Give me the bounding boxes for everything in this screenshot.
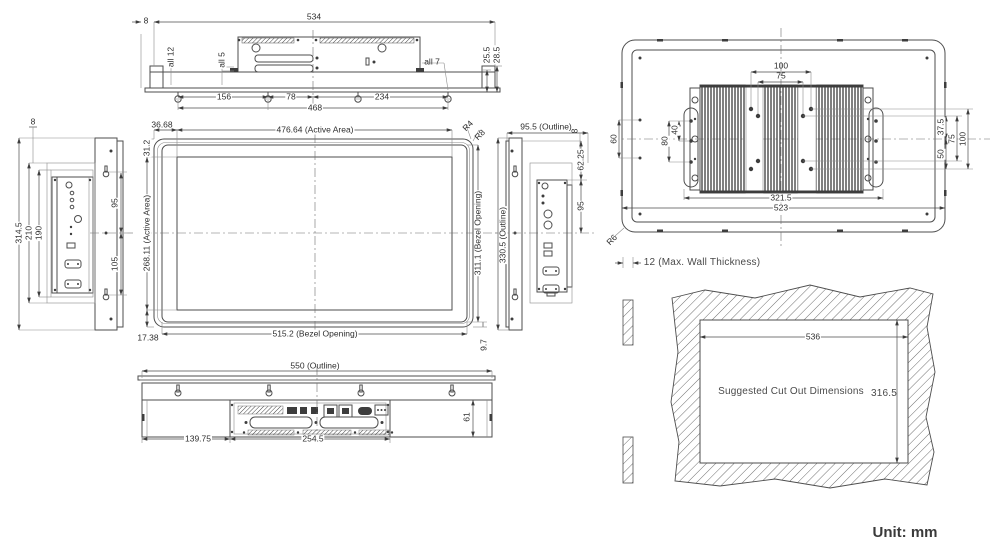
- dim-label-all7: all 7: [423, 58, 441, 67]
- wall-thickness-label: 12 (Max. Wall Thickness): [643, 258, 762, 269]
- dim-label-78: 78: [285, 93, 296, 102]
- dim-label-105: 105: [111, 256, 120, 272]
- dim-label-95-left: 95: [111, 197, 120, 208]
- dim-label-62-25: 62.25: [577, 148, 586, 171]
- dim-label-536: 536: [805, 333, 821, 342]
- dim-label-bezel-height: 311.1 (Bezel Opening): [474, 190, 483, 276]
- dim-label-550-outline: 550 (Outline): [289, 362, 340, 371]
- dim-label-active-width: 476.64 (Active Area): [275, 126, 354, 135]
- dim-label-17-38: 17.38: [136, 334, 159, 343]
- dim-label-75-vesa: 75: [948, 133, 957, 144]
- dim-label-330-5-outline: 330.5 (Outline): [499, 206, 508, 264]
- dim-label-534: 534: [306, 13, 322, 22]
- right-side-view-drawing: [495, 115, 610, 355]
- dim-label-139-75: 139.75: [184, 435, 212, 444]
- dim-label-100-top: 100: [773, 62, 789, 71]
- dim-label-316-5: 316.5: [870, 389, 898, 400]
- dim-label-234: 234: [374, 93, 390, 102]
- dim-label-8-right: 8: [571, 128, 580, 135]
- dim-label-80: 80: [661, 135, 670, 146]
- dim-label-75-top: 75: [775, 72, 786, 81]
- dim-label-bezel-width: 515.2 (Bezel Opening): [271, 330, 358, 339]
- cutout-caption: Suggested Cut Out Dimensions: [717, 387, 865, 398]
- dim-label-523: 523: [773, 204, 789, 213]
- dim-label-50: 50: [937, 148, 946, 159]
- dim-label-210: 210: [25, 225, 34, 241]
- dim-label-25-5: 25.5: [483, 46, 492, 65]
- dim-label-468: 468: [307, 104, 323, 113]
- dim-label-95-5-outline: 95.5 (Outline): [519, 123, 573, 132]
- technical-drawing-sheet: 534 8 all 12 all 5 all 7 25.5 28.5 156 7…: [0, 0, 1000, 560]
- dim-label-156: 156: [216, 93, 232, 102]
- front-view-drawing: [135, 112, 510, 362]
- dim-label-37-5: 37.5: [937, 118, 946, 137]
- dim-label-100-vesa: 100: [959, 131, 968, 147]
- dim-label-61: 61: [463, 411, 472, 422]
- dim-label-8-top: 8: [143, 17, 150, 26]
- dim-label-95-right: 95: [577, 200, 586, 211]
- dim-label-9-7: 9.7: [480, 338, 489, 352]
- dim-label-28-5: 28.5: [493, 46, 502, 65]
- dim-label-254-5: 254.5: [301, 435, 324, 444]
- dim-label-31-2: 31.2: [143, 139, 152, 158]
- cutout-view-drawing: [605, 252, 1000, 502]
- dim-label-60: 60: [610, 133, 619, 144]
- dim-label-all12: all 12: [167, 46, 176, 68]
- dim-label-321-5: 321.5: [769, 194, 792, 203]
- top-view-drawing: [130, 8, 522, 112]
- dim-label-190: 190: [35, 225, 44, 241]
- dim-label-8-left: 8: [30, 118, 37, 127]
- dim-label-36-68: 36.68: [150, 121, 173, 130]
- dim-label-314-5: 314.5: [15, 221, 24, 244]
- dim-label-40: 40: [671, 124, 680, 135]
- dim-label-active-height: 268.11 (Active Area): [143, 194, 152, 272]
- unit-label: Unit: mm: [872, 525, 939, 541]
- dim-label-all5: all 5: [218, 51, 227, 69]
- heatsink: [700, 85, 863, 193]
